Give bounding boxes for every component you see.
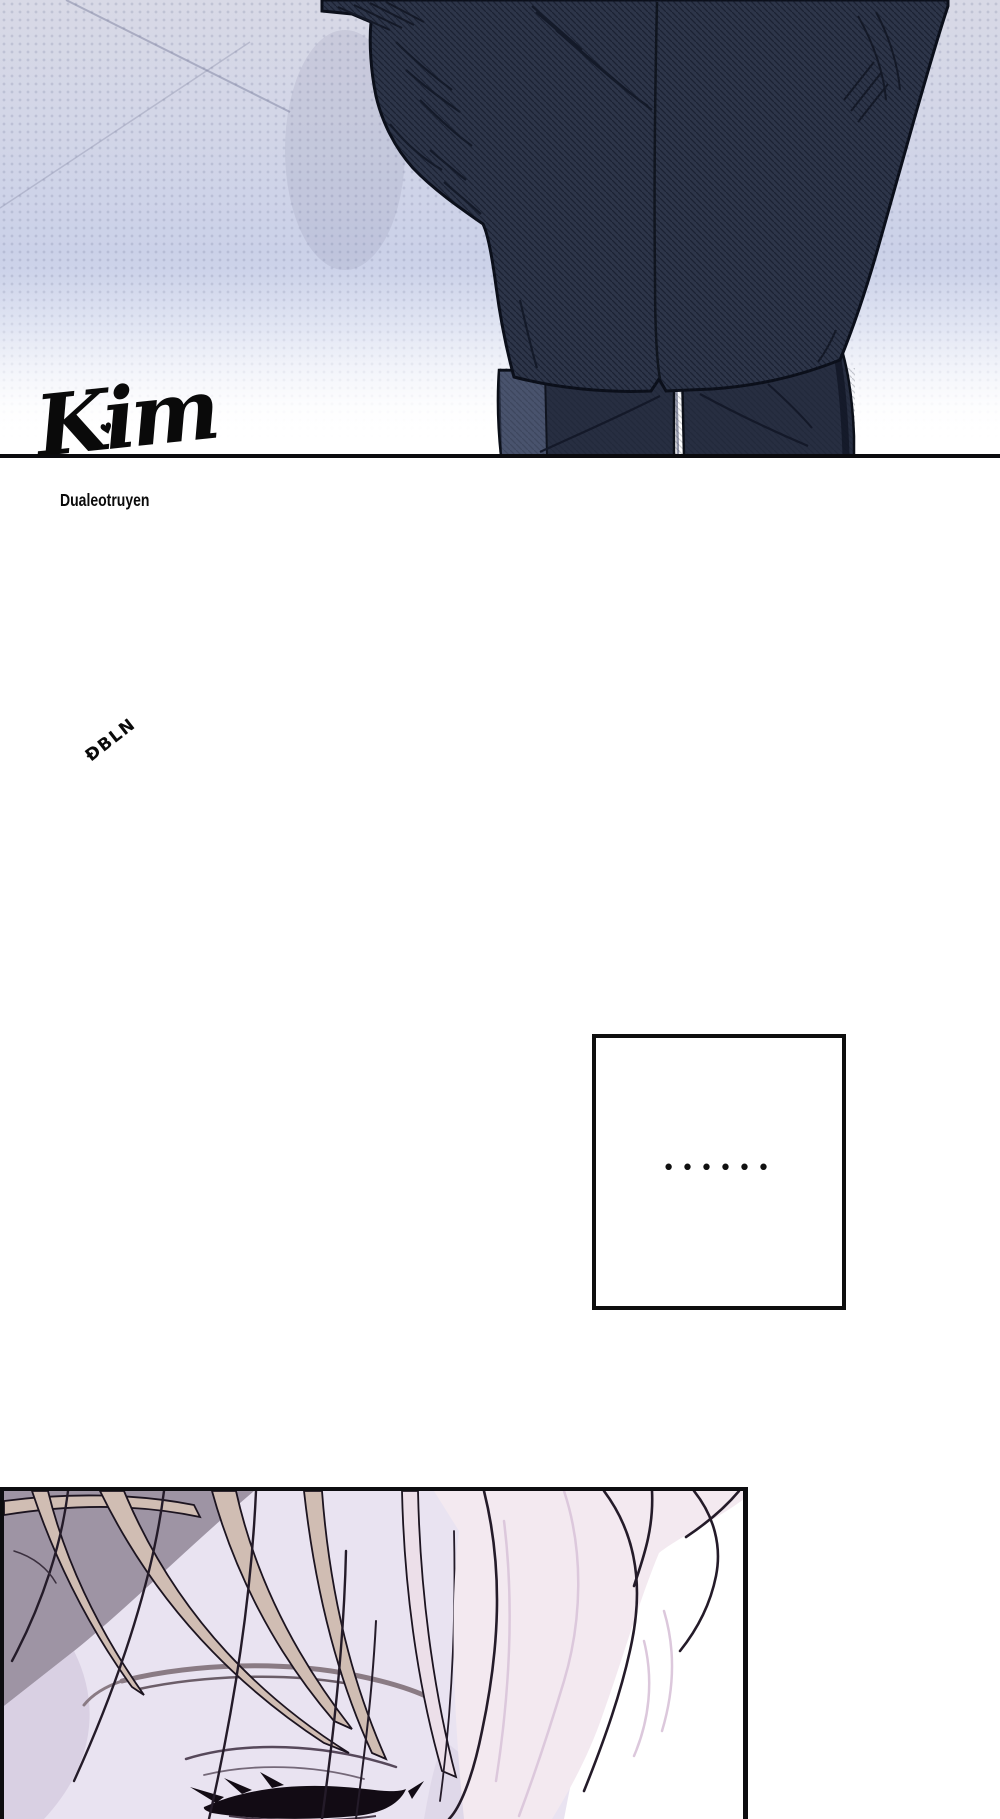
hair-mass-right <box>434 1491 743 1819</box>
watermark-credit: Dualeotruyen <box>60 490 149 511</box>
manhwa-page: ĐBLN Kim ♥ Dualeotruyen •••••• <box>0 0 1000 1819</box>
face-closeup-art <box>4 1491 743 1819</box>
translator-watermark: ĐBLN Kim ♥ Dualeotruyen <box>34 348 214 528</box>
background-lines <box>0 0 405 270</box>
watermark-tag: ĐBLN <box>82 714 140 766</box>
watermark-logo: Kim <box>32 367 219 469</box>
ellipsis-dialogue: •••••• <box>662 1156 776 1181</box>
suit-jacket <box>322 0 948 391</box>
speech-box: •••••• <box>592 1034 846 1310</box>
panel-face-closeup <box>0 1487 748 1819</box>
